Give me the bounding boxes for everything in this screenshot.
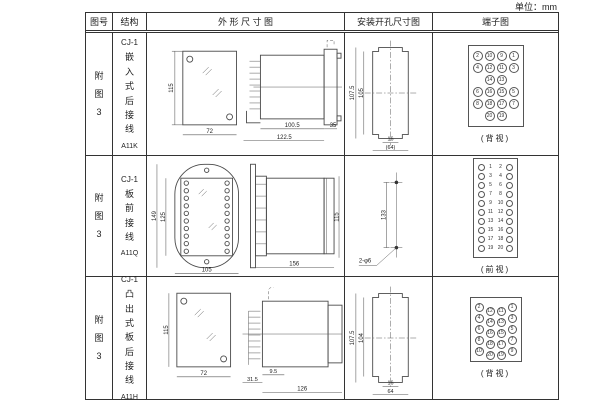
dim-label: 72 bbox=[206, 129, 213, 135]
dim-label: 105 bbox=[202, 268, 213, 274]
header-fig-no: 图号 bbox=[86, 13, 113, 30]
structure-cell: CJ-1 凸出式板后接线 A11H bbox=[113, 277, 147, 399]
front-view: 115 72 bbox=[169, 51, 237, 135]
terminal-cell: 1234567891011121314151617181920 (前视) bbox=[433, 156, 558, 276]
outline-drawing: 115 72 100.5 35 bbox=[147, 33, 344, 155]
dim-label: 100.5 bbox=[285, 123, 301, 129]
header-structure: 结构 bbox=[113, 13, 147, 30]
install-drawing: 107.5 105 16 (64) bbox=[345, 33, 432, 155]
side-view: 100.5 35 122.5 bbox=[244, 40, 343, 141]
terminal-grid: 2109141211314136161558181772019 bbox=[468, 45, 524, 127]
model-label: CJ-1 bbox=[121, 175, 138, 184]
dim-label: 107.5 bbox=[350, 330, 356, 346]
dim-label: 72 bbox=[200, 371, 207, 377]
front-view: 115 72 bbox=[164, 293, 231, 377]
code-label: A11K bbox=[121, 143, 138, 150]
terminal-grid: 2121114141336161558181771020199 bbox=[470, 297, 522, 362]
dim-label: 105 bbox=[359, 87, 365, 98]
dim-label: 115 bbox=[335, 212, 341, 222]
structure-label: 凸出式板后接线 bbox=[123, 287, 136, 388]
terminal-caption: (背视) bbox=[481, 368, 510, 379]
dim-label: 122.5 bbox=[277, 135, 293, 141]
spec-table: 图号 结构 外 形 尺 寸 图 安装开孔尺寸图 端子图 附图3 CJ-1 嵌入式… bbox=[85, 12, 559, 400]
front-view: 149 125 105 bbox=[152, 164, 239, 273]
outline-drawing-cell: 115 72 9.5 31.5 126 bbox=[147, 277, 345, 399]
table-header: 图号 结构 外 形 尺 寸 图 安装开孔尺寸图 端子图 bbox=[86, 13, 558, 33]
fig-no-cell: 附图3 bbox=[86, 156, 113, 276]
dim-label: 104 bbox=[359, 332, 365, 343]
model-label: CJ-1 bbox=[121, 275, 138, 284]
fig-no: 附图3 bbox=[93, 311, 106, 365]
structure-cell: CJ-1 嵌入式后接线 A11K bbox=[113, 33, 147, 155]
header-terminal: 端子图 bbox=[433, 13, 558, 30]
terminal-grid: 1234567891011121314151617181920 bbox=[473, 158, 518, 258]
terminal-caption: (前视) bbox=[481, 264, 510, 275]
dim-label: 16 bbox=[387, 380, 393, 386]
dim-label: 115 bbox=[169, 83, 175, 93]
side-view: 156 115 bbox=[250, 164, 340, 267]
hole-spec-label: 2-φ6 bbox=[359, 258, 372, 264]
fig-no-cell: 附图3 bbox=[86, 33, 113, 155]
dim-label: 107.5 bbox=[350, 85, 356, 101]
fig-no: 附图3 bbox=[93, 189, 106, 243]
side-view: 9.5 31.5 126 bbox=[243, 287, 342, 392]
dim-label: 31.5 bbox=[247, 377, 258, 383]
outline-drawing-cell: 149 125 105 156 115 bbox=[147, 156, 345, 276]
code-label: A11Q bbox=[121, 250, 138, 257]
structure-label: 板前接线 bbox=[123, 187, 136, 245]
dim-label: 156 bbox=[289, 262, 300, 268]
outline-drawing: 149 125 105 156 115 bbox=[147, 156, 344, 276]
terminal-caption: (背视) bbox=[481, 133, 510, 144]
model-label: CJ-1 bbox=[121, 38, 138, 47]
install-drawing-cell: 107.5 105 16 (64) bbox=[345, 33, 433, 155]
table-row-a11q: 附图3 CJ-1 板前接线 A11Q bbox=[86, 156, 558, 277]
install-drawing-cell: 133 2-φ6 bbox=[345, 156, 433, 276]
table-row-a11k: 附图3 CJ-1 嵌入式后接线 A11K 115 bbox=[86, 33, 558, 156]
dim-label: 149 bbox=[152, 210, 158, 221]
dim-label: 64 bbox=[387, 389, 393, 395]
dim-label: 35 bbox=[330, 123, 337, 129]
dim-label: (64) bbox=[386, 145, 396, 151]
outline-drawing-cell: 115 72 100.5 35 bbox=[147, 33, 345, 155]
fig-no-cell: 附图3 bbox=[86, 277, 113, 399]
table-row-a11h: 附图3 CJ-1 凸出式板后接线 A11H 115 72 bbox=[86, 277, 558, 399]
dim-label: 126 bbox=[297, 387, 308, 393]
fig-no: 附图3 bbox=[93, 67, 106, 121]
dim-label: 16 bbox=[387, 136, 393, 142]
header-install: 安装开孔尺寸图 bbox=[345, 13, 433, 30]
outline-drawing: 115 72 9.5 31.5 126 bbox=[147, 277, 344, 399]
dim-label: 115 bbox=[164, 325, 170, 335]
install-drawing: 107.5 104 16 64 bbox=[345, 277, 432, 399]
dim-label: 9.5 bbox=[270, 369, 278, 375]
dim-label: 133 bbox=[382, 209, 388, 220]
install-drawing: 133 2-φ6 bbox=[345, 156, 432, 276]
install-drawing-cell: 107.5 104 16 64 bbox=[345, 277, 433, 399]
header-outline: 外 形 尺 寸 图 bbox=[147, 13, 345, 30]
terminal-cell: 2121114141336161558181771020199 (背视) bbox=[433, 277, 558, 399]
structure-label: 嵌入式后接线 bbox=[123, 50, 136, 136]
structure-cell: CJ-1 板前接线 A11Q bbox=[113, 156, 147, 276]
dim-label: 125 bbox=[161, 211, 167, 222]
terminal-cell: 2109141211314136161558181772019 (背视) bbox=[433, 33, 558, 155]
